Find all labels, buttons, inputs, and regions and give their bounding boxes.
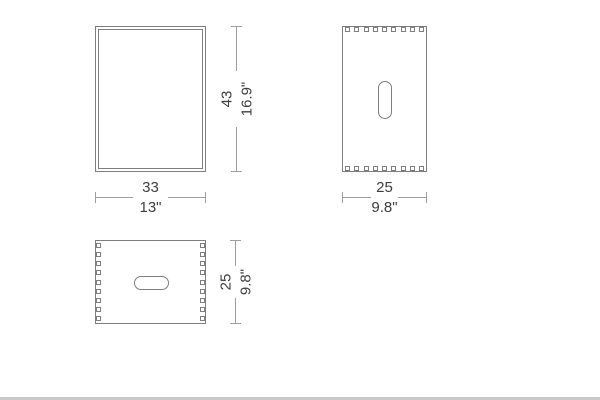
finger-joint	[96, 289, 101, 294]
finger-joints-bottom	[345, 166, 424, 171]
dimension-value-metric: 25	[342, 180, 427, 195]
finger-joint	[382, 27, 387, 32]
finger-joints-left	[96, 243, 101, 321]
dimension-value-imperial: 16.9"	[240, 82, 255, 117]
dimension-value-metric: 33	[95, 180, 206, 195]
finger-joint	[96, 252, 101, 257]
finger-joint	[96, 298, 101, 303]
front-view-inner-frame	[98, 29, 203, 169]
finger-joint	[373, 166, 378, 171]
finger-joint	[200, 270, 205, 275]
finger-joint	[96, 270, 101, 275]
dimension-value-imperial: 13"	[95, 200, 206, 215]
finger-joint	[96, 307, 101, 312]
finger-joint	[401, 166, 406, 171]
side-view-drawing	[342, 26, 427, 172]
finger-joint	[200, 289, 205, 294]
finger-joint	[354, 166, 359, 171]
technical-drawing-canvas: 33 13" 25 9.8" 43 16.9" 25 9.8"	[0, 0, 600, 400]
finger-joint	[382, 166, 387, 171]
finger-joint	[96, 261, 101, 266]
finger-joint	[345, 27, 350, 32]
handle-slot-horizontal	[134, 276, 169, 290]
finger-joint	[410, 27, 415, 32]
finger-joint	[96, 280, 101, 285]
finger-joint	[200, 261, 205, 266]
dimension-value-imperial: 9.8"	[239, 269, 254, 295]
dimension-value-metric: 25	[219, 274, 234, 291]
dimension-line-segment-bottom	[236, 127, 237, 172]
dimension-front-height: 43 16.9"	[217, 26, 257, 172]
finger-joint	[391, 166, 396, 171]
dimension-line-segment-left	[95, 197, 133, 198]
finger-joint	[200, 243, 205, 248]
finger-joint	[391, 27, 396, 32]
dimension-value-imperial: 9.8"	[342, 200, 427, 215]
finger-joint	[410, 166, 415, 171]
finger-joint	[345, 166, 350, 171]
finger-joint	[200, 307, 205, 312]
finger-joint	[419, 27, 424, 32]
finger-joint	[200, 316, 205, 321]
finger-joint	[354, 27, 359, 32]
finger-joint	[364, 27, 369, 32]
dimension-line-segment-bottom	[235, 298, 236, 324]
dimension-line-segment-left	[342, 197, 371, 198]
top-view-drawing	[95, 240, 206, 324]
finger-joint	[200, 298, 205, 303]
front-view-drawing	[95, 26, 206, 172]
dimension-value-metric: 43	[220, 91, 235, 108]
dimension-top-depth: 25 9.8"	[216, 240, 256, 324]
handle-slot-vertical	[378, 81, 392, 119]
finger-joints-right	[200, 243, 205, 321]
dimension-line-segment-top	[235, 240, 236, 266]
dimension-line-segment-top	[236, 26, 237, 71]
finger-joint	[401, 27, 406, 32]
finger-joint	[373, 27, 378, 32]
finger-joint	[419, 166, 424, 171]
finger-joints-top	[345, 27, 424, 32]
dimension-front-width: 33 13"	[95, 181, 206, 217]
dimension-line-segment-right	[168, 197, 206, 198]
dimension-line-segment-right	[398, 197, 427, 198]
finger-joint	[96, 243, 101, 248]
finger-joint	[200, 280, 205, 285]
finger-joint	[364, 166, 369, 171]
finger-joint	[200, 252, 205, 257]
dimension-side-width: 25 9.8"	[342, 181, 427, 217]
finger-joint	[96, 316, 101, 321]
